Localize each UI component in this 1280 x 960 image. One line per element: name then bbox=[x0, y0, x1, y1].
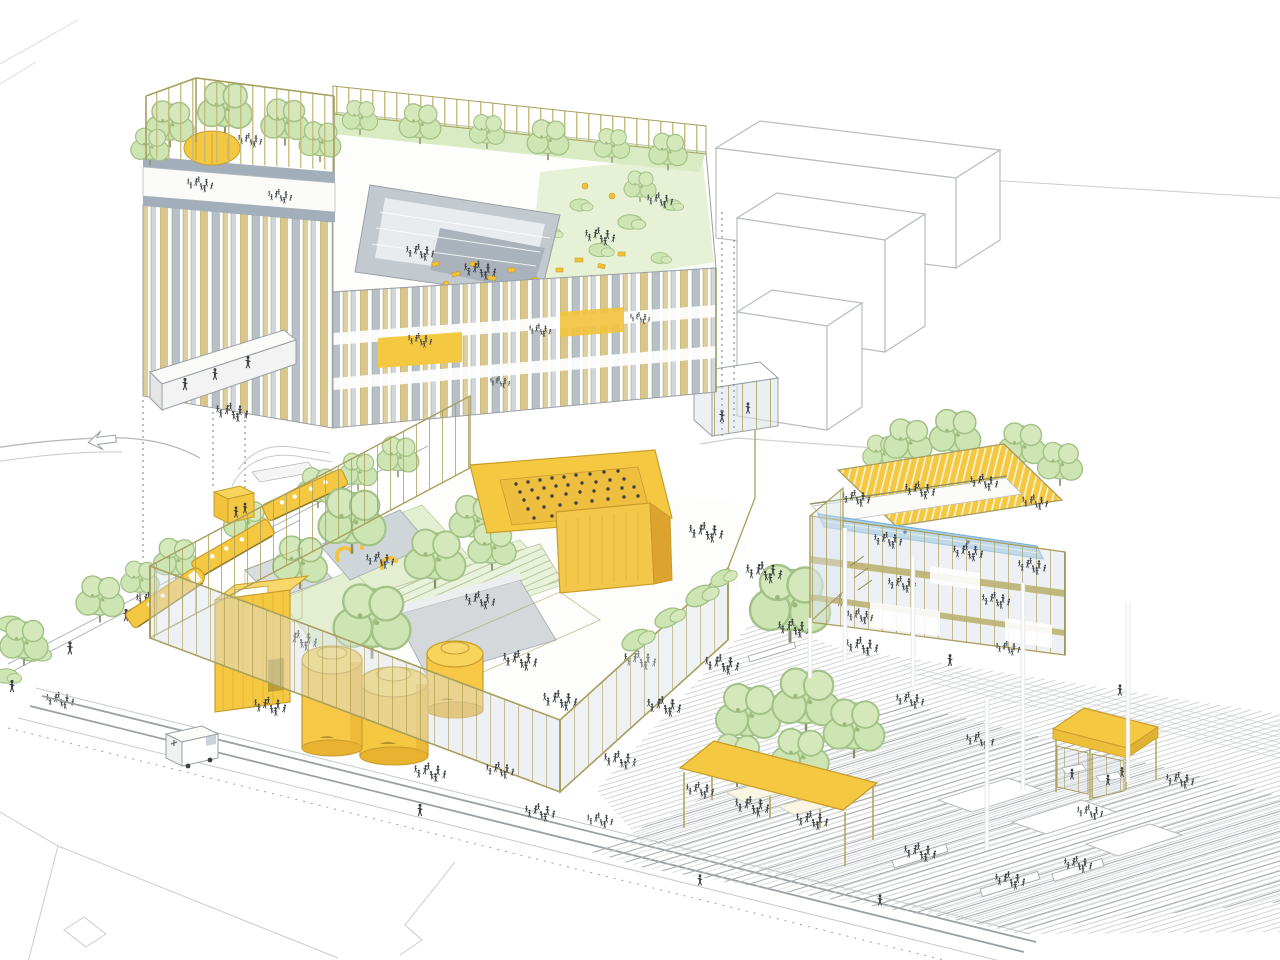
auditorium-stage-box bbox=[556, 503, 654, 593]
facade-yellow-windows bbox=[378, 332, 462, 368]
slab-building bbox=[333, 86, 716, 428]
delivery-van bbox=[166, 726, 218, 768]
tower bbox=[131, 78, 341, 428]
architectural-illustration bbox=[0, 0, 1280, 960]
illustration-canvas bbox=[0, 0, 1280, 960]
facade-yellow-windows-2 bbox=[560, 307, 624, 337]
